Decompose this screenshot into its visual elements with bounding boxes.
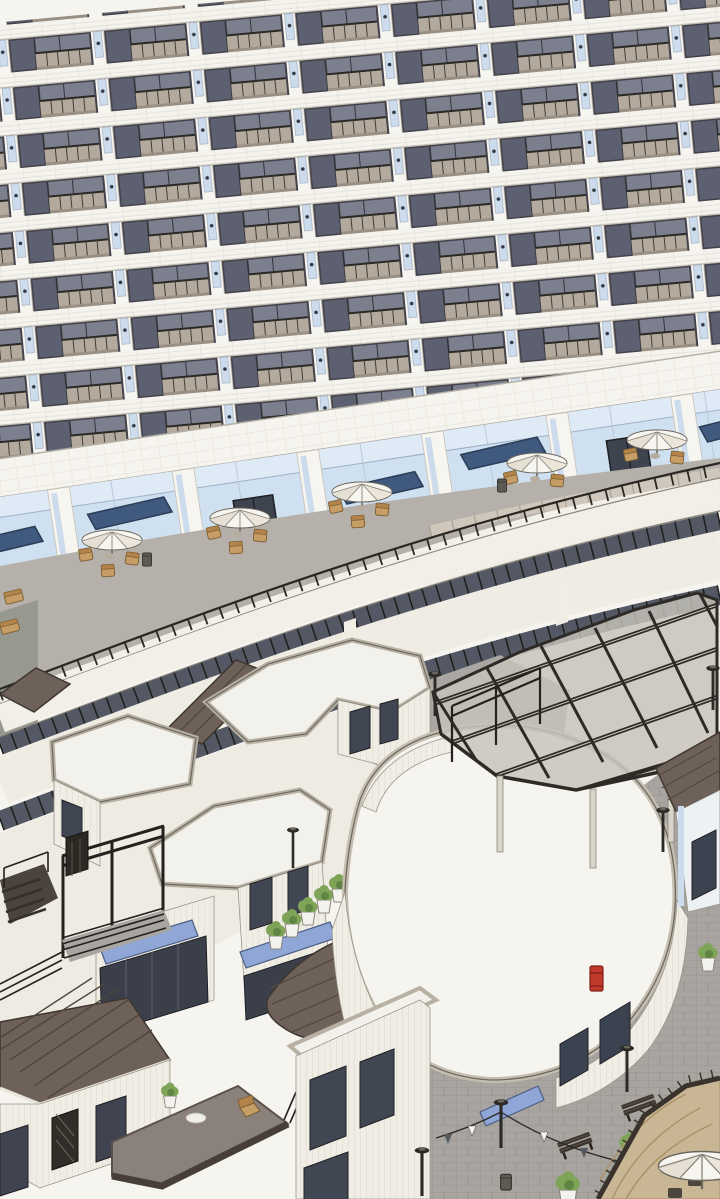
- architectural-render: [0, 0, 720, 1199]
- strip-pier: [556, 576, 568, 626]
- perforated-panel: [66, 831, 88, 876]
- render-viewport: [0, 0, 720, 1199]
- plaza-bin: [501, 1174, 512, 1190]
- postbox: [590, 966, 603, 991]
